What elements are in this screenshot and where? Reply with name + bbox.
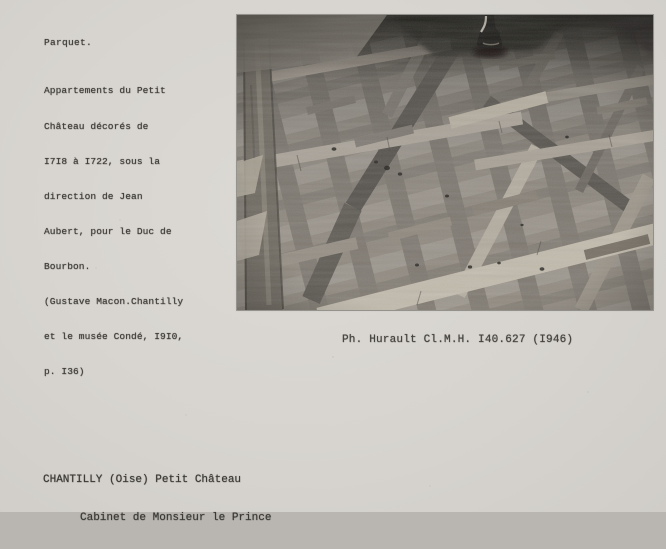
subject-heading: Parquet.: [44, 37, 92, 48]
description-line: Château décorés de: [44, 121, 183, 133]
description-block: Appartements du Petit Château décorés de…: [44, 62, 183, 401]
location-line-2: Cabinet de Monsieur le Prince: [80, 512, 271, 525]
description-line: Bourbon.: [44, 261, 183, 273]
photo-credit: Ph. Hurault Cl.M.H. I40.627 (I946): [342, 334, 573, 346]
location-line-1: CHANTILLY (Oise) Petit Château: [43, 474, 271, 487]
location-caption: CHANTILLY (Oise) Petit Château Cabinet d…: [43, 449, 271, 549]
description-line: p. I36): [44, 366, 183, 378]
description-line: direction de Jean: [44, 191, 183, 203]
description-line: I7I8 à I722, sous la: [44, 156, 183, 168]
archive-photo-card: Parquet. Appartements du Petit Château d…: [0, 0, 666, 512]
parquet-photograph: [237, 15, 653, 310]
description-line: et le musée Condé, I9I0,: [44, 331, 183, 343]
description-line: (Gustave Macon.Chantilly: [44, 296, 183, 308]
description-line: Appartements du Petit: [44, 85, 183, 97]
photo-vignette: [237, 15, 653, 310]
description-line: Aubert, pour le Duc de: [44, 226, 183, 238]
parquet-floor-illustration: [237, 15, 653, 310]
